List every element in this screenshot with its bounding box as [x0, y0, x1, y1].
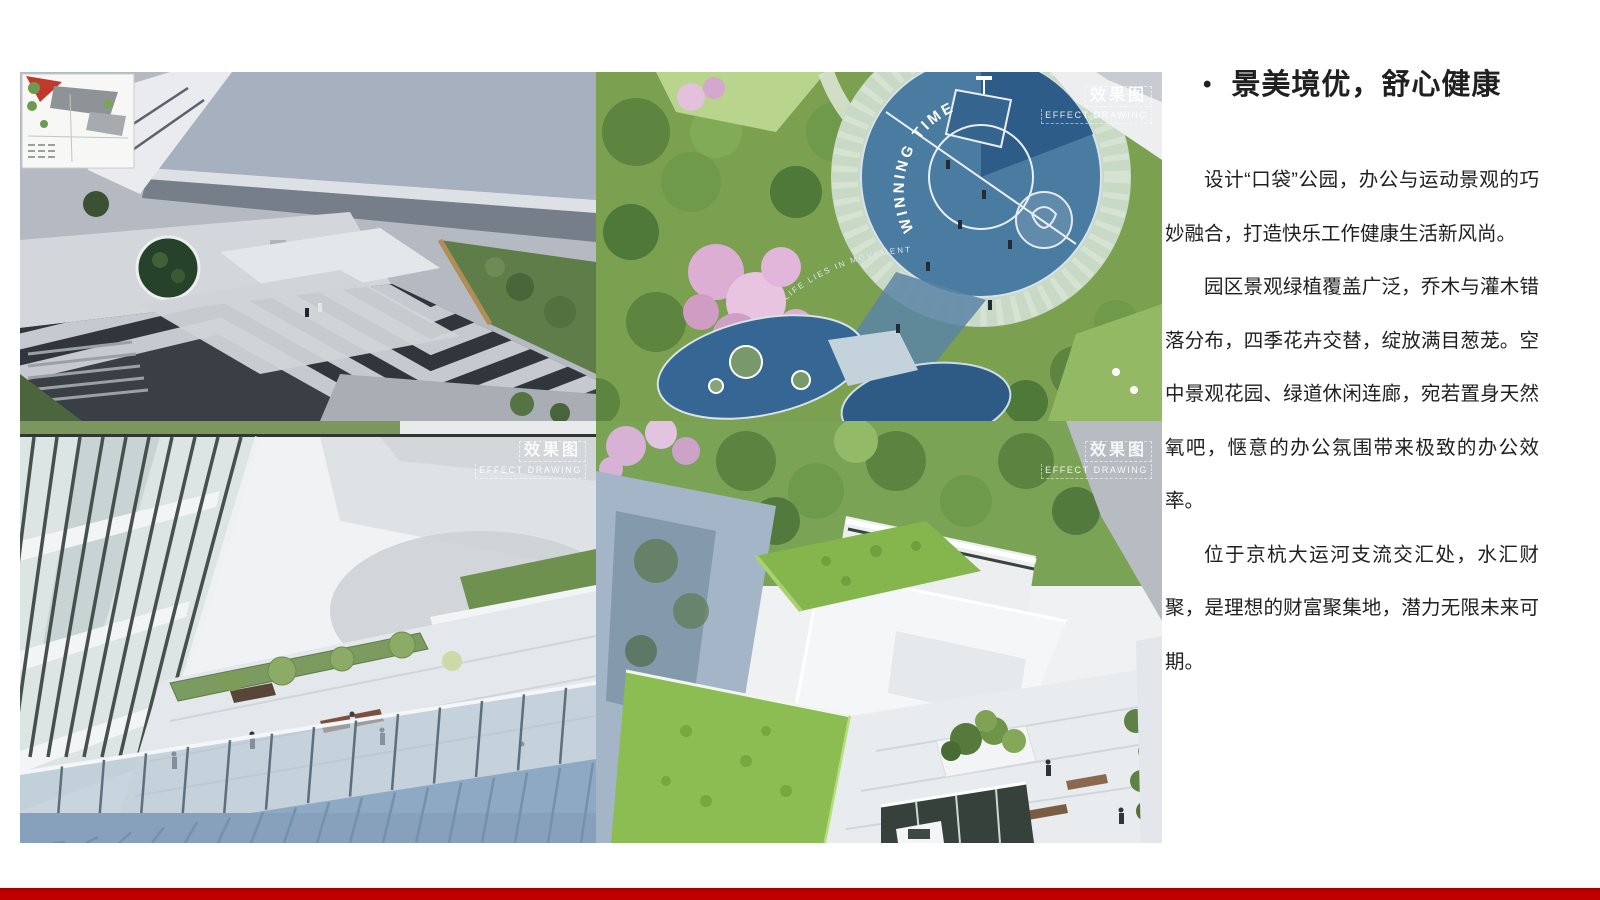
- paragraph-3: 位于京杭大运河支流交汇处，水汇财聚，是理想的财富聚集地，潜力无限未来可期。: [1165, 529, 1539, 690]
- watermark-en-label: EFFECT DRAWING: [1041, 464, 1152, 478]
- paragraph-2: 园区景观绿植覆盖广泛，乔木与灌木错落分布，四季花卉交替，绽放满目葱茏。空中景观花…: [1165, 261, 1539, 529]
- render-park-aerial: WINNING TIME LIFE LIES IN MOVEMENT: [596, 72, 1162, 421]
- terrace-render-svg: [20, 421, 596, 843]
- render-roof-terrace: 效果图 EFFECT DRAWING: [20, 421, 596, 843]
- bottom-accent-bar: [0, 888, 1600, 900]
- watermark-cn-label: 效果图: [1085, 86, 1152, 107]
- park-render-svg: WINNING TIME LIFE LIES IN MOVEMENT: [596, 72, 1162, 421]
- watermark-cn-label: 效果图: [1085, 441, 1152, 462]
- watermark-cn-label: 效果图: [519, 441, 586, 462]
- slide: { "title_section": { "bullet": "•", "tit…: [0, 0, 1600, 900]
- page-title: 景美境优，舒心健康: [1231, 66, 1501, 104]
- building-render-svg: [596, 421, 1162, 843]
- bullet-point: •: [1203, 66, 1211, 104]
- body-text: 设计“口袋”公园，办公与运动景观的巧妙融合，打造快乐工作健康生活新风尚。 园区景…: [1165, 154, 1539, 689]
- paragraph-1: 设计“口袋”公园，办公与运动景观的巧妙融合，打造快乐工作健康生活新风尚。: [1165, 154, 1539, 261]
- effect-drawing-watermark: 效果图 EFFECT DRAWING: [1041, 86, 1152, 124]
- render-courtyard-aerial: [20, 72, 596, 421]
- render-green-roof-building: 效果图 EFFECT DRAWING: [596, 421, 1162, 843]
- effect-drawing-watermark: 效果图 EFFECT DRAWING: [1041, 441, 1152, 479]
- court-emblem: [1016, 192, 1072, 248]
- title-row: • 景美境优，舒心健康: [1165, 66, 1539, 104]
- watermark-en-label: EFFECT DRAWING: [475, 464, 586, 478]
- render-image-grid: WINNING TIME LIFE LIES IN MOVEMENT: [20, 72, 1162, 843]
- courtyard-render-svg: [20, 72, 596, 421]
- text-panel: • 景美境优，舒心健康 设计“口袋”公园，办公与运动景观的巧妙融合，打造快乐工作…: [1165, 66, 1539, 689]
- effect-drawing-watermark: 效果图 EFFECT DRAWING: [475, 441, 586, 479]
- watermark-en-label: EFFECT DRAWING: [1041, 109, 1152, 123]
- site-plan-inset: [22, 74, 134, 168]
